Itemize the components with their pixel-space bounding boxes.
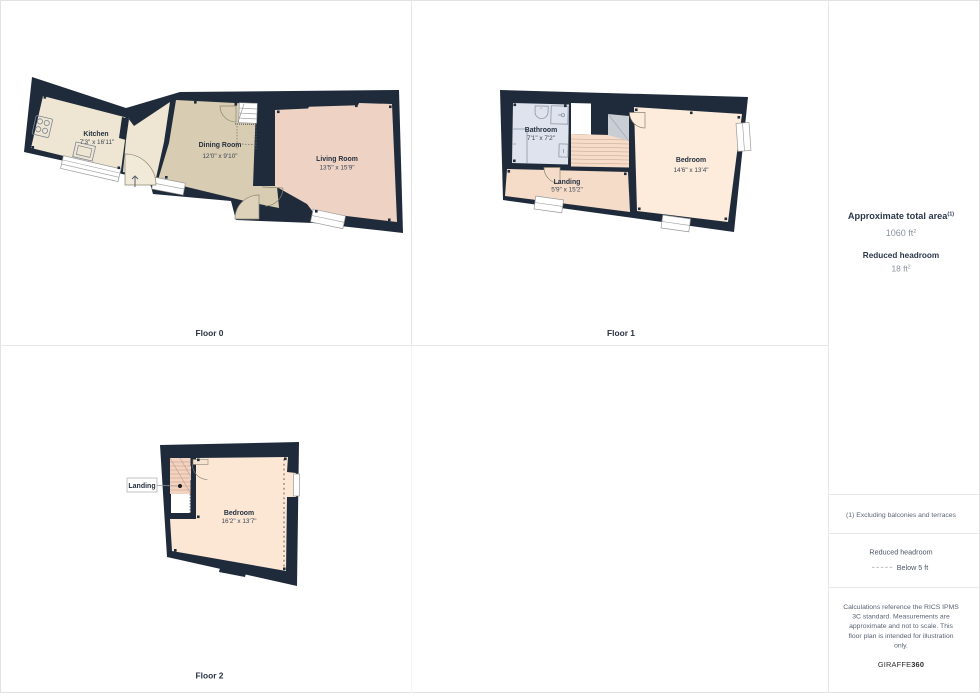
svg-text:Bedroom: Bedroom (224, 510, 254, 517)
svg-text:Floor 2: Floor 2 (196, 671, 224, 681)
svg-text:floor plan is intended for ill: floor plan is intended for illustration (848, 633, 953, 640)
svg-text:Landing: Landing (128, 483, 155, 490)
svg-text:Below 5 ft: Below 5 ft (897, 563, 929, 572)
svg-text:1060 ft2: 1060 ft2 (886, 228, 917, 238)
svg-text:16'2" x 13'7": 16'2" x 13'7" (221, 518, 256, 525)
svg-text:Dining Room: Dining Room (199, 142, 242, 149)
svg-text:Landing: Landing (554, 179, 581, 186)
svg-text:Floor 0: Floor 0 (196, 328, 224, 338)
svg-text:(1) Excluding balconies and te: (1) Excluding balconies and terraces (846, 512, 957, 519)
svg-text:13'5" x 15'9": 13'5" x 15'9" (319, 165, 354, 172)
svg-text:7'1" x 7'2": 7'1" x 7'2" (527, 135, 555, 142)
svg-text:3C standard. Measurements are: 3C standard. Measurements are (852, 614, 950, 621)
svg-text:14'6" x 13'4": 14'6" x 13'4" (673, 167, 708, 174)
svg-text:Kitchen: Kitchen (83, 131, 108, 138)
svg-text:Reduced headroom: Reduced headroom (869, 548, 932, 557)
svg-text:GIRAFFE360: GIRAFFE360 (878, 660, 924, 669)
svg-text:5'9" x 15'2": 5'9" x 15'2" (551, 187, 583, 194)
svg-text:7'3" x 16'11": 7'3" x 16'11" (80, 139, 115, 146)
svg-text:Approximate total area(1): Approximate total area(1) (848, 211, 954, 221)
svg-text:Floor 1: Floor 1 (607, 328, 635, 338)
svg-text:only.: only. (894, 642, 908, 649)
svg-text:Bathroom: Bathroom (525, 127, 558, 134)
svg-text:approximate and not to scale.: approximate and not to scale. This (849, 623, 953, 630)
svg-text:Living Room: Living Room (316, 156, 358, 163)
svg-text:Bedroom: Bedroom (676, 157, 706, 164)
svg-text:12'0" x 9'10": 12'0" x 9'10" (202, 153, 237, 160)
svg-text:Calculations reference the RIC: Calculations reference the RICS IPMS (843, 604, 959, 611)
svg-text:Reduced headroom: Reduced headroom (863, 251, 939, 260)
